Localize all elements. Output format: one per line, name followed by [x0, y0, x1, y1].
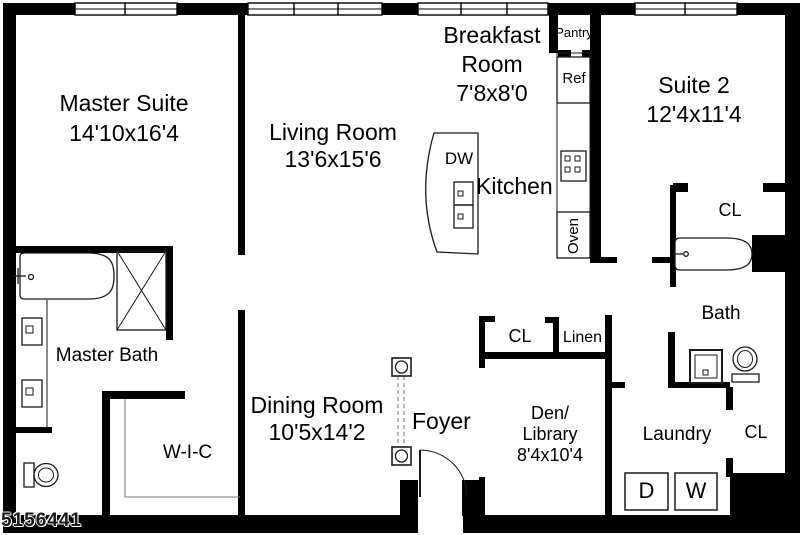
breakfast-room-dims: 7'8x8'0 [431, 79, 553, 108]
label-hall-closet: CL [494, 326, 546, 348]
suite2-closet-name: CL [705, 200, 755, 222]
master-suite-dims: 14'10x16'4 [34, 118, 214, 148]
pantry-name: Pantry [542, 25, 606, 41]
laundry-closet-name: CL [730, 422, 782, 444]
dishwasher-label: DW [441, 149, 477, 169]
room-label-den-library: Den/ Library 8'4x10'4 [500, 403, 600, 466]
linen-closet-name: Linen [555, 328, 610, 347]
laundry-name: Laundry [633, 424, 721, 447]
master-suite-name: Master Suite [34, 88, 214, 118]
dining-room-dims: 10'5x14'2 [227, 419, 407, 446]
label-dishwasher: DW [441, 149, 477, 169]
room-label-foyer: Foyer [412, 407, 471, 436]
master-bath-name: Master Bath [47, 345, 167, 368]
watermark: 5156441 [1, 510, 82, 533]
den-name-1: Den/ [500, 403, 600, 424]
oven-label: Oven [565, 206, 583, 266]
room-label-breakfast-room: Breakfast Room 7'8x8'0 [431, 21, 553, 108]
foyer-name: Foyer [412, 407, 471, 436]
suite2-toilet-icon [732, 347, 759, 382]
label-laundry-closet: CL [730, 422, 782, 444]
window-suite-2 [635, 3, 737, 15]
breakfast-room-name-2: Room [431, 50, 553, 79]
suite-2-dims: 12'4x11'4 [604, 100, 784, 129]
label-refrigerator: Ref [545, 70, 603, 88]
stove-icon [561, 151, 586, 181]
label-suite2-closet: CL [705, 200, 755, 222]
label-linen-closet: Linen [555, 328, 610, 347]
den-dims: 8'4x10'4 [500, 445, 600, 466]
hall-closet-name: CL [494, 326, 546, 348]
entry-door-icon [420, 450, 467, 497]
floor-plan: Master Suite 14'10x16'4 Living Room 13'6… [0, 0, 800, 535]
shower-icon [117, 251, 166, 330]
label-washer: W [675, 478, 717, 504]
window-living-room [248, 3, 382, 15]
suite2-bathtub-icon [675, 238, 752, 270]
room-label-master-suite: Master Suite 14'10x16'4 [34, 88, 214, 148]
washer-label: W [675, 478, 717, 504]
room-label-laundry: Laundry [633, 424, 721, 447]
label-pantry: Pantry [542, 25, 606, 41]
room-label-kitchen: Kitchen [476, 172, 553, 201]
den-name-2: Library [500, 424, 600, 445]
window-breakfast-room [418, 3, 548, 15]
room-label-bath: Bath [690, 303, 752, 326]
living-room-name: Living Room [243, 119, 423, 146]
room-label-suite-2: Suite 2 12'4x11'4 [604, 71, 784, 129]
breakfast-room-name-1: Breakfast [431, 21, 553, 50]
watermark-text: 5156441 [1, 510, 82, 533]
suite2-sink-icon [690, 350, 722, 383]
refrigerator-label: Ref [545, 70, 603, 88]
window-master-suite [75, 3, 177, 15]
room-label-wic: W-I-C [150, 442, 225, 465]
bath-name: Bath [690, 303, 752, 326]
label-dryer: D [625, 478, 668, 504]
label-oven: Oven [565, 206, 583, 266]
master-vanity-icon [22, 300, 47, 427]
master-bathtub-icon [13, 253, 114, 299]
suite-2-name: Suite 2 [604, 71, 784, 100]
dryer-label: D [625, 478, 668, 504]
master-toilet-icon [24, 463, 58, 487]
dining-room-name: Dining Room [227, 392, 407, 419]
room-label-living-room: Living Room 13'6x15'6 [243, 119, 423, 173]
room-label-master-bath: Master Bath [47, 345, 167, 368]
living-room-dims: 13'6x15'6 [243, 146, 423, 173]
wic-name: W-I-C [150, 442, 225, 465]
room-label-dining-room: Dining Room 10'5x14'2 [227, 392, 407, 446]
kitchen-name: Kitchen [476, 172, 553, 201]
